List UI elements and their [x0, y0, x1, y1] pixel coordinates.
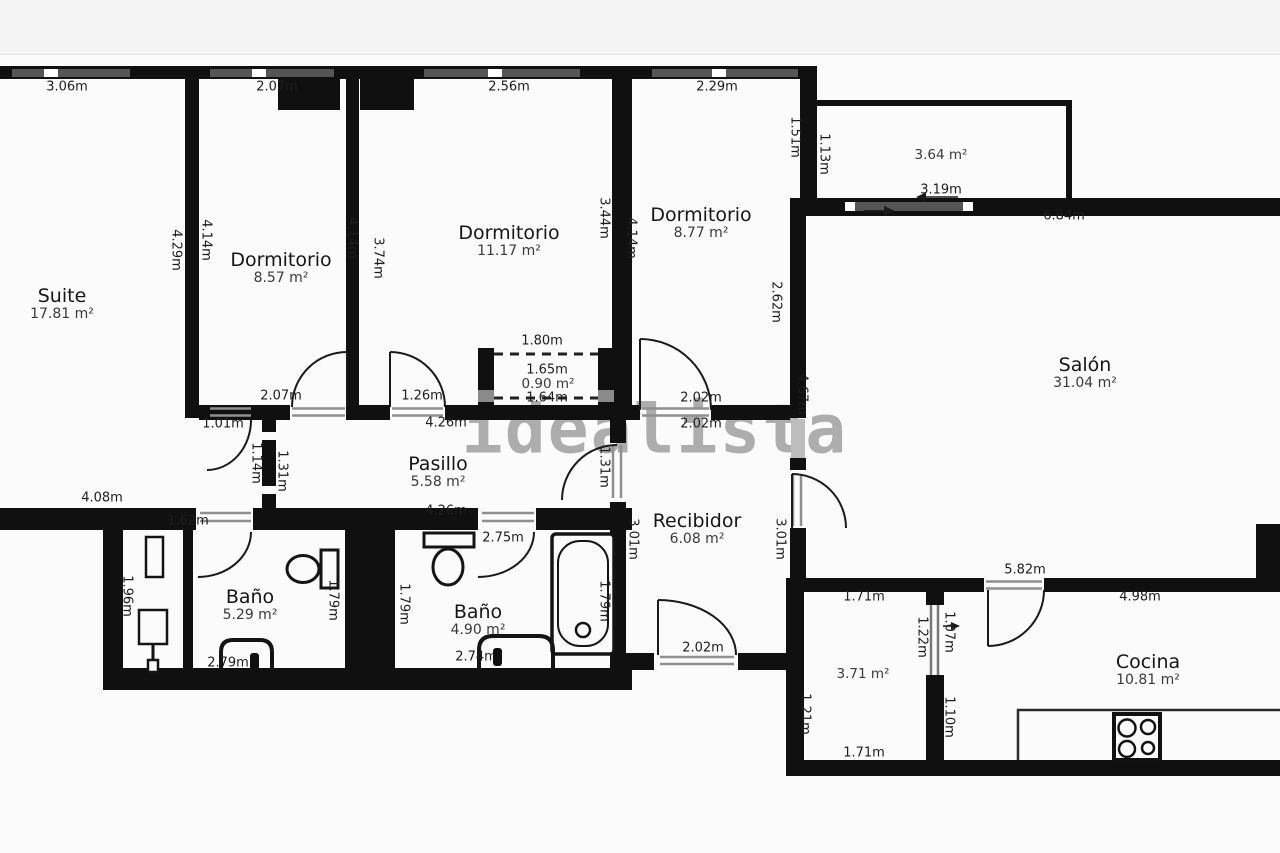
- shower-valve-icon: [250, 653, 259, 670]
- fixtures-top-layer: [0, 0, 1280, 853]
- shower-valve-icon: [493, 648, 502, 666]
- floorplan-canvas: idealista: [0, 0, 1280, 853]
- stove: [1114, 714, 1160, 760]
